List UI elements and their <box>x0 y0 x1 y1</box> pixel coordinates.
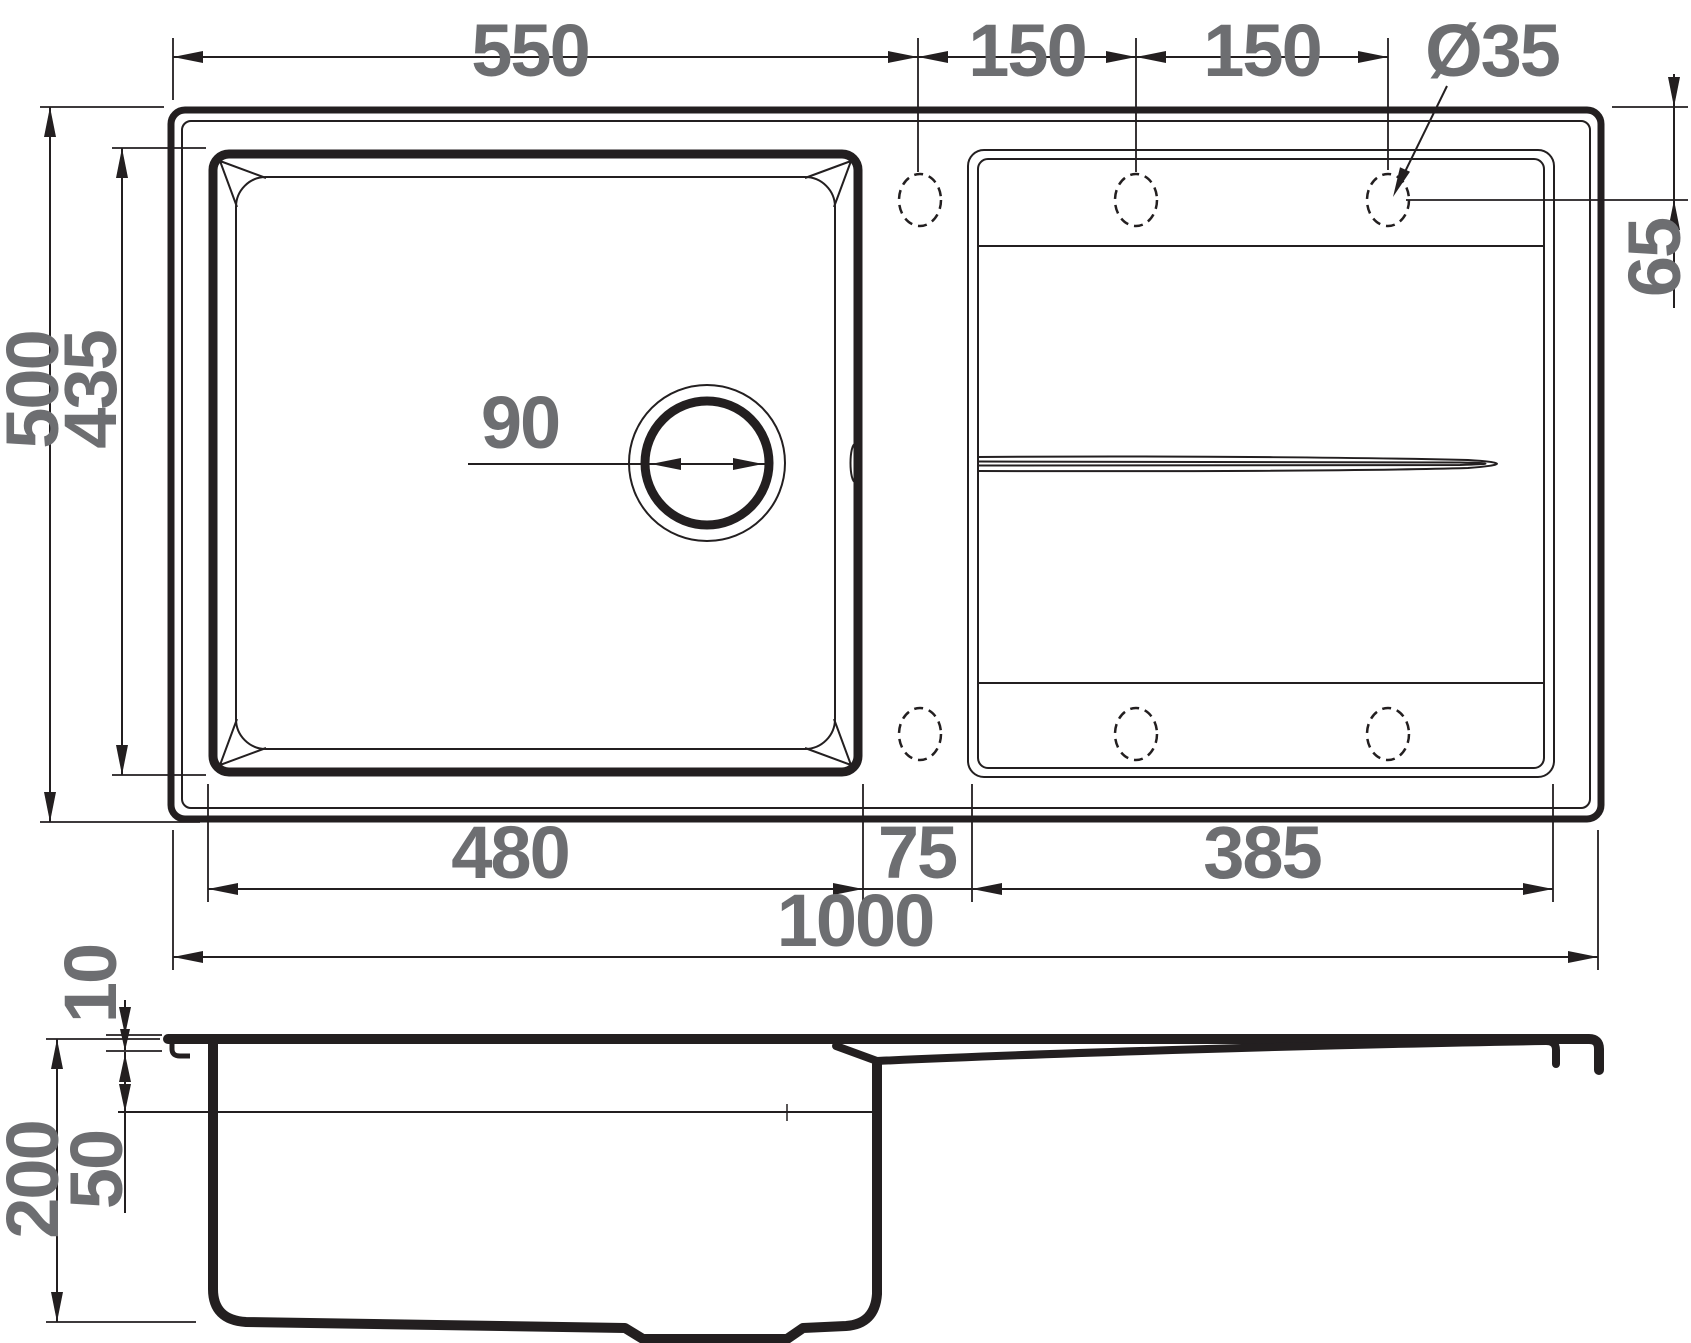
arrowhead <box>119 1054 131 1082</box>
arrowhead <box>1136 51 1166 63</box>
arrowhead <box>116 148 128 178</box>
arrowhead <box>1523 883 1553 895</box>
tap-holes <box>899 174 1409 760</box>
dim-label-385: 385 <box>1203 811 1321 894</box>
arrowhead <box>1568 951 1598 963</box>
tap-hole <box>1115 708 1157 760</box>
arrowhead <box>120 1029 130 1051</box>
arrowhead <box>888 51 918 63</box>
arrowhead <box>51 1292 63 1322</box>
leader-line-hole-diameter <box>1399 86 1447 184</box>
extension-lines-500 <box>40 107 200 822</box>
drainboard-inner-edge <box>978 159 1544 768</box>
tap-hole <box>899 708 941 760</box>
tap-hole <box>1115 174 1157 226</box>
dim-label-1000: 1000 <box>777 879 934 962</box>
drainboard-groove-inner <box>978 461 1486 466</box>
side-bowl-profile <box>213 1043 877 1339</box>
dim-label-480: 480 <box>451 811 568 894</box>
dim-label-435: 435 <box>49 330 132 448</box>
arrowhead <box>119 1084 131 1112</box>
arrowhead <box>1358 51 1388 63</box>
extension-lines-435 <box>112 148 206 775</box>
arrowhead <box>173 951 203 963</box>
arrowhead <box>918 51 948 63</box>
dim-label-65: 65 <box>1613 218 1691 297</box>
arrowhead <box>116 745 128 775</box>
tap-hole <box>899 174 941 226</box>
side-view-dimensions: 10 200 50 <box>0 945 196 1322</box>
side-view <box>118 1039 1599 1341</box>
dim-label-150a: 150 <box>968 9 1085 92</box>
dim-label-150b: 150 <box>1203 9 1320 92</box>
arrowhead <box>208 883 238 895</box>
top-view <box>171 110 1601 819</box>
side-drainboard-leading-edge <box>836 1046 877 1061</box>
drainboard-groove-outer <box>978 457 1497 472</box>
tap-hole <box>1367 708 1409 760</box>
dim-label-50: 50 <box>55 1131 138 1209</box>
arrowhead <box>651 458 681 470</box>
technical-drawing-canvas: 550 150 150 Ø35 65 500 435 90 <box>0 0 1691 1343</box>
dim-label-90: 90 <box>481 381 559 464</box>
arrowhead <box>44 792 56 822</box>
arrowhead <box>1668 77 1680 107</box>
extension-lines-10 <box>106 1035 162 1051</box>
side-drainboard-surface <box>877 1041 1556 1064</box>
arrowhead <box>1106 51 1136 63</box>
arrowhead <box>733 458 763 470</box>
dim-label-550: 550 <box>471 9 588 92</box>
dim-label-hole-diameter: Ø35 <box>1425 9 1560 92</box>
arrowhead <box>51 1039 63 1069</box>
arrowhead <box>173 51 203 63</box>
sink-drawing: 550 150 150 Ø35 65 500 435 90 <box>0 0 1691 1343</box>
dim-label-10: 10 <box>49 945 132 1023</box>
arrowhead <box>972 883 1002 895</box>
arrowhead <box>44 107 56 137</box>
